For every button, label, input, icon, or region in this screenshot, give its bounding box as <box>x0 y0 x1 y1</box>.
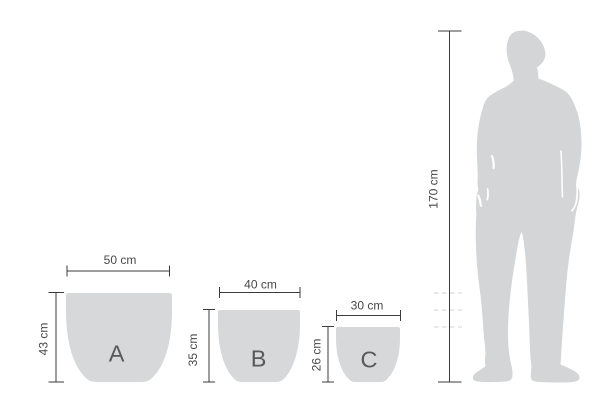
svg-text:43 cm: 43 cm <box>37 323 51 356</box>
svg-text:B: B <box>251 345 267 371</box>
svg-text:30 cm: 30 cm <box>351 299 384 313</box>
svg-text:A: A <box>109 341 125 367</box>
svg-text:26 cm: 26 cm <box>310 339 324 372</box>
svg-text:50 cm: 50 cm <box>104 253 137 267</box>
svg-text:40 cm: 40 cm <box>244 278 277 292</box>
svg-text:170 cm: 170 cm <box>427 169 441 208</box>
svg-text:C: C <box>361 347 378 373</box>
svg-text:35 cm: 35 cm <box>186 334 200 367</box>
